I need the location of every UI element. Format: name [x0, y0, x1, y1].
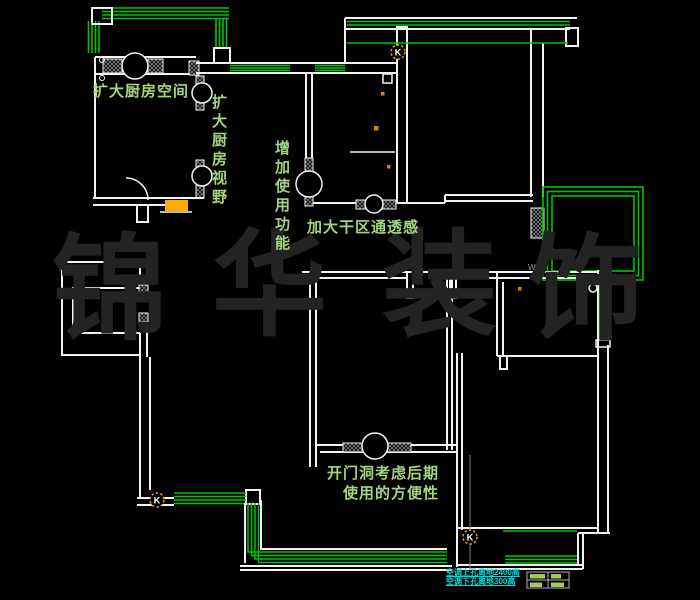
bay-window-lines: [503, 531, 577, 563]
balcony-window-top-left: [89, 8, 230, 53]
fixture-dots-bathroom: [374, 92, 391, 169]
window-lines-middle: [230, 66, 345, 71]
counter-orange-rect: [165, 200, 188, 211]
lower-left-window: [174, 493, 246, 504]
switch-label: K: [154, 496, 161, 506]
terrace-window-lines: [248, 503, 447, 563]
switch-label: K: [395, 48, 402, 58]
switch-symbol-top: K: [391, 45, 405, 59]
lower-left-walls: [137, 355, 260, 505]
cad-floorplan-canvas[interactable]: K K K WG 锦 华 装 饰 扩大厨房空间 扩大厨房视野 增加使用功能 加大…: [0, 0, 700, 600]
ac-note-line1: 空调上孔离地2400高: [446, 568, 520, 577]
watermark-char: 饰: [528, 232, 643, 347]
annotation-add-usage-function: 增加使用功能: [272, 140, 290, 254]
switch-symbol-bottom-right: K: [463, 530, 477, 544]
kitchen-walls: [93, 53, 212, 222]
door-note-line2: 使用的方便性: [343, 485, 439, 502]
ac-hole-note: 空调上孔离地2400高空调下孔离地300高: [446, 568, 520, 586]
wall-columns-top: [92, 8, 230, 63]
bathroom-walls: [296, 27, 407, 213]
bottom-right-room-walls: [457, 353, 610, 569]
annotation-expand-kitchen-space: 扩大厨房空间: [93, 83, 189, 101]
annotation-door-opening-note: 开门洞考虑后期使用的方便性: [303, 464, 439, 504]
door-note-line1: 开门洞考虑后期: [327, 465, 439, 482]
watermark-char: 华: [212, 228, 327, 343]
annotation-expand-kitchen-view: 扩大厨房视野: [209, 94, 227, 208]
switch-symbol-left: K: [150, 493, 164, 507]
watermark-char: 装: [382, 228, 497, 343]
switch-label: K: [467, 533, 474, 543]
window-lines-top-right: [347, 22, 570, 44]
legend-table: [527, 572, 569, 588]
ac-note-line2: 空调下孔离地300高: [446, 577, 515, 586]
annotation-enlarge-dry-area: 加大干区通透感: [307, 219, 419, 237]
watermark-char: 锦: [52, 232, 167, 347]
